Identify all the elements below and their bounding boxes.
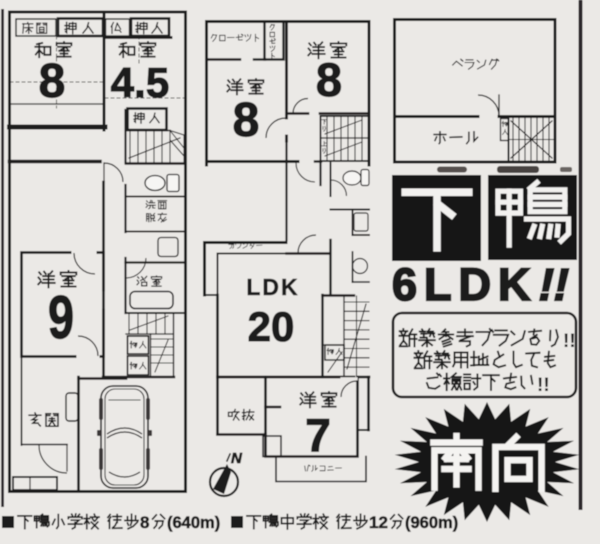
svg-text:(640m): (640m) xyxy=(167,514,220,532)
svg-text:7: 7 xyxy=(305,409,331,461)
svg-text:LDK: LDK xyxy=(246,274,299,300)
svg-text:12: 12 xyxy=(369,513,388,532)
svg-text:8: 8 xyxy=(39,55,66,108)
svg-text:8: 8 xyxy=(316,53,342,106)
svg-text:!!: !! xyxy=(537,375,550,396)
svg-text:4.5: 4.5 xyxy=(111,59,169,106)
svg-text:9: 9 xyxy=(48,284,74,351)
svg-text:!!: !! xyxy=(563,331,576,352)
svg-text:N: N xyxy=(231,450,243,467)
svg-text:8: 8 xyxy=(233,94,260,147)
svg-text:6LDK: 6LDK xyxy=(392,259,538,310)
svg-text:8: 8 xyxy=(140,513,149,532)
svg-text:(960m): (960m) xyxy=(405,514,458,532)
svg-text:20: 20 xyxy=(248,303,295,350)
